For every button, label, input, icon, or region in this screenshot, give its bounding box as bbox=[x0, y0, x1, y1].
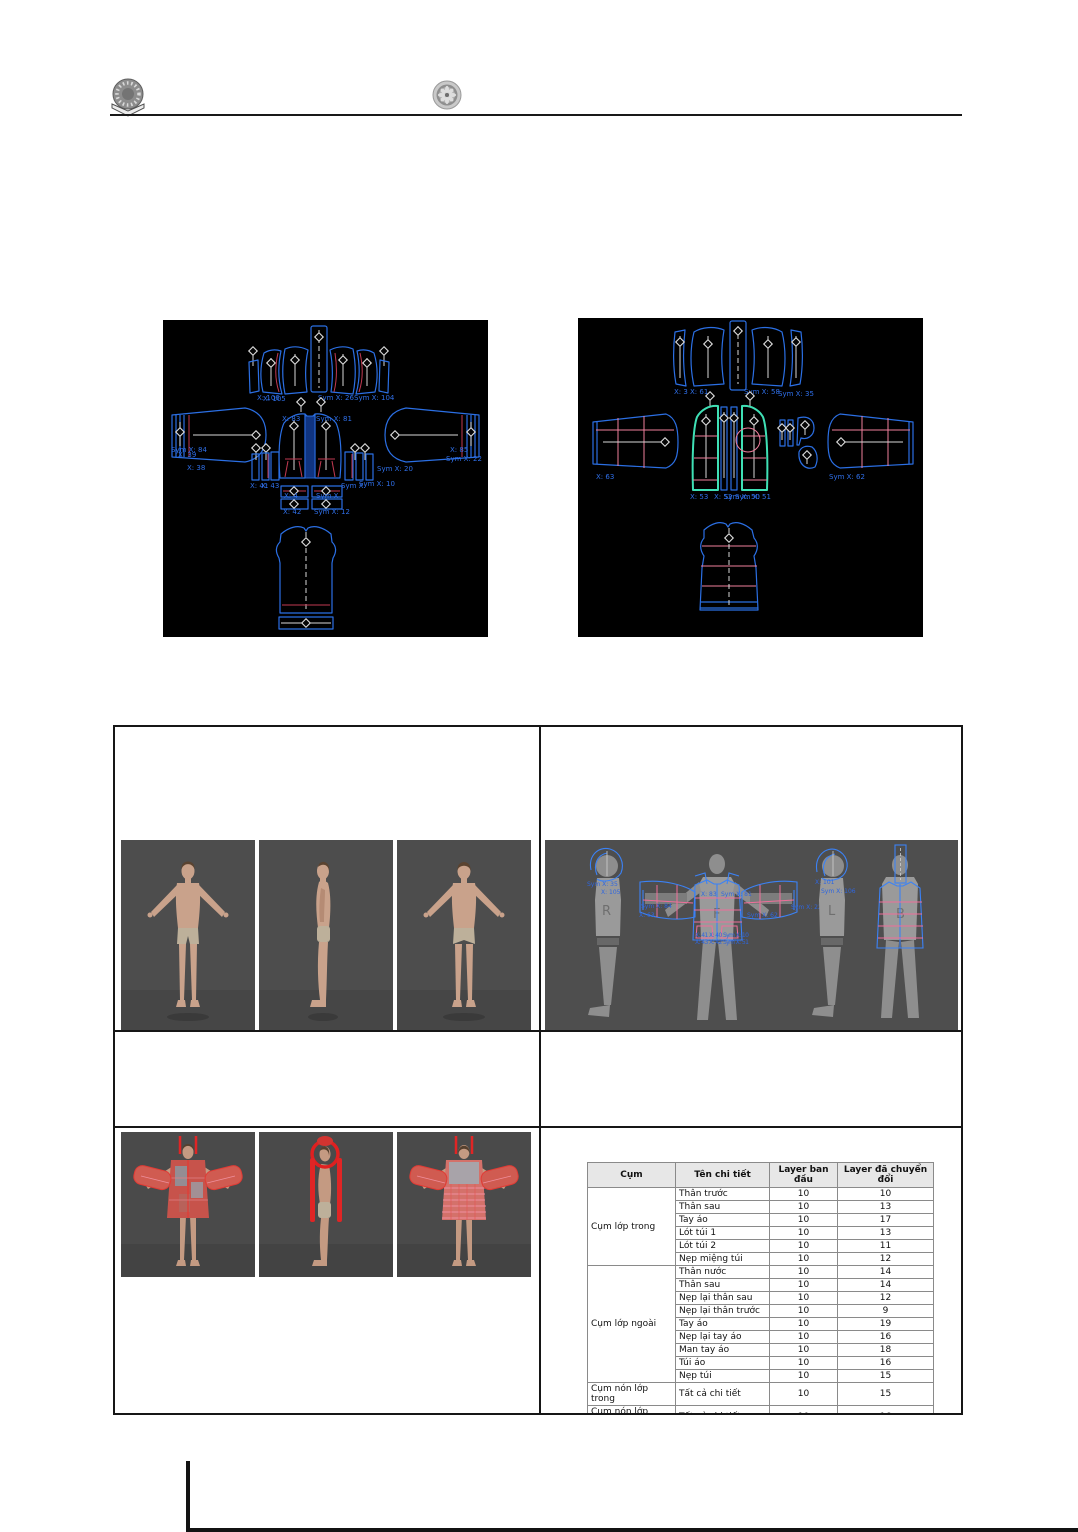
figure-2d-layout-window: R Sym X: 35 X: 105 F bbox=[545, 840, 958, 1030]
layer-table-cell: Nẹp miệng túi bbox=[676, 1253, 770, 1266]
layer-table-cell: 10 bbox=[838, 1188, 934, 1201]
layer-table-cell: Tay áo bbox=[676, 1318, 770, 1331]
layer-table-cell: 10 bbox=[770, 1406, 838, 1414]
pattern-label: X: 83 bbox=[701, 891, 717, 898]
layer-table-cell: Thân sau bbox=[676, 1279, 770, 1292]
cropped-figure-top-border bbox=[186, 1528, 1078, 1532]
cropped-figure-left-border bbox=[186, 1461, 190, 1532]
layer-table-cell: 10 bbox=[770, 1266, 838, 1279]
layer-table-cell: 14 bbox=[838, 1279, 934, 1292]
layer-table-cell: 9 bbox=[838, 1305, 934, 1318]
layer-table-cell: 16 bbox=[838, 1331, 934, 1344]
pattern-label: Sym X: 51 bbox=[735, 493, 771, 501]
pattern-label: Sym X: 81 bbox=[316, 415, 352, 423]
dressed-avatar-strip bbox=[115, 1132, 539, 1277]
layer-table-cell: 10 bbox=[770, 1331, 838, 1344]
red-jacket-back bbox=[442, 1160, 486, 1220]
layer-table-group-cell: Cụm nón lớp trong bbox=[588, 1383, 676, 1406]
pattern-label: X: 105 bbox=[263, 395, 286, 403]
layer-table-cell: 13 bbox=[838, 1201, 934, 1214]
header-divider-line bbox=[110, 114, 962, 116]
pattern-label: X: 38 bbox=[187, 464, 205, 472]
layer-table-cell: Thân nước bbox=[676, 1266, 770, 1279]
layer-table-row: Cụm nón lớp ngoàiTất cả chi tiết1016 bbox=[588, 1406, 934, 1414]
layer-table-cell: Thân trước bbox=[676, 1188, 770, 1201]
cell-2d-layout: R Sym X: 35 X: 105 F bbox=[541, 727, 961, 1032]
layer-table-row: Cụm lớp ngoàiThân nước1014 bbox=[588, 1266, 934, 1279]
layer-table-cell: Tất cả chi tiết bbox=[676, 1383, 770, 1406]
pattern-label: X: 105 bbox=[601, 889, 621, 896]
avatar-side-view bbox=[259, 840, 393, 1030]
figure-pattern-2d-after: X: 3 X: 61 Sym X: 58 Sym X: 35 X: 63 Sym… bbox=[578, 318, 923, 637]
col-header-group: Cụm bbox=[588, 1163, 676, 1188]
red-jacket bbox=[167, 1160, 209, 1218]
layer-table-cell: 10 bbox=[770, 1292, 838, 1305]
pattern-label: X: 63 bbox=[596, 473, 614, 481]
cell-caption-right bbox=[541, 1032, 961, 1128]
layer-table-cell: 14 bbox=[838, 1266, 934, 1279]
layer-table-cell: Tay áo bbox=[676, 1214, 770, 1227]
pattern-label: X: 39 bbox=[178, 451, 196, 459]
layer-table-cell: 10 bbox=[770, 1214, 838, 1227]
layer-table-cell: 10 bbox=[770, 1344, 838, 1357]
layer-table-group-cell: Cụm lớp trong bbox=[588, 1188, 676, 1266]
layer-table-cell: Lót túi 1 bbox=[676, 1227, 770, 1240]
layer-table-cell: 10 bbox=[770, 1318, 838, 1331]
pattern-label: X: 101 bbox=[815, 879, 835, 886]
layer-table-cell: 11 bbox=[838, 1240, 934, 1253]
faculty-gear-logo bbox=[431, 79, 463, 111]
layer-table-group-cell: Cụm lớp ngoài bbox=[588, 1266, 676, 1383]
layer-table-cell: 10 bbox=[770, 1357, 838, 1370]
layer-table-cell: 10 bbox=[770, 1279, 838, 1292]
pattern-label: X: 42 bbox=[283, 508, 301, 516]
layer-table-cell: Man tay áo bbox=[676, 1344, 770, 1357]
pattern-label: Sym X bbox=[316, 492, 339, 500]
layer-table-cell: 10 bbox=[770, 1201, 838, 1214]
layer-table-cell: 10 bbox=[770, 1370, 838, 1383]
pattern-label: Sym X: 10 bbox=[359, 480, 395, 488]
pattern-label: X: 4 bbox=[284, 492, 298, 500]
layer-table-cell: Lót túi 2 bbox=[676, 1240, 770, 1253]
pattern-label: X: 43 X: 42 Sym X: 51 bbox=[695, 939, 749, 946]
layer-table-header-row: Cụm Tên chi tiết Layer ban đầu Layer đã … bbox=[588, 1163, 934, 1188]
layer-table-cell: Thân sau bbox=[676, 1201, 770, 1214]
figure-pattern-2d-before: X: 106 X: 105 Sym X: 26 Sym X: 104 Sym X… bbox=[163, 320, 488, 637]
layer-table-row: Cụm nón lớp trongTất cả chi tiết1015 bbox=[588, 1383, 934, 1406]
pattern-label: Sym X: 35 bbox=[778, 390, 814, 398]
avatar-shorts bbox=[317, 926, 330, 942]
layer-table-cell: 13 bbox=[838, 1227, 934, 1240]
page: X: 106 X: 105 Sym X: 26 Sym X: 104 Sym X… bbox=[0, 0, 1078, 1532]
silhouette-letter: R bbox=[602, 904, 611, 919]
pattern-label: Sym X: 104 bbox=[354, 394, 395, 402]
col-header-layer-after: Layer đã chuyển đổi bbox=[838, 1163, 934, 1188]
pattern-label: X: 53 bbox=[690, 493, 708, 501]
pattern-label: X: 61 bbox=[690, 388, 708, 396]
avatar-back-view bbox=[397, 840, 531, 1030]
pattern-label: X: 85 bbox=[450, 446, 468, 454]
layer-conversion-table: Cụm Tên chi tiết Layer ban đầu Layer đã … bbox=[587, 1162, 934, 1413]
layer-table-cell: 10 bbox=[770, 1227, 838, 1240]
pattern-label: Sym X: 12 bbox=[314, 508, 350, 516]
avatar-front-view bbox=[121, 840, 255, 1030]
cell-avatar-views bbox=[115, 727, 541, 1032]
pattern-label: Sym X: 62 bbox=[747, 912, 778, 919]
layer-table-cell: 18 bbox=[838, 1344, 934, 1357]
cell-caption-left bbox=[115, 1032, 541, 1128]
layer-table-cell: 10 bbox=[770, 1305, 838, 1318]
layer-table-cell: 15 bbox=[838, 1383, 934, 1406]
layer-table-cell: 12 bbox=[838, 1253, 934, 1266]
layer-table-cell: 12 bbox=[838, 1292, 934, 1305]
pattern-label: Sym X: 84 bbox=[641, 903, 672, 910]
layer-table-cell: Nẹp lại tay áo bbox=[676, 1331, 770, 1344]
pattern-label: X: 3 bbox=[674, 388, 688, 396]
dressed-avatar-front-view bbox=[121, 1132, 255, 1277]
pattern-label: Sym X: 62 bbox=[829, 473, 865, 481]
pattern-label: X: 63 bbox=[639, 912, 655, 919]
figure-table: R Sym X: 35 X: 105 F bbox=[113, 725, 963, 1415]
layer-table-cell: 10 bbox=[770, 1253, 838, 1266]
avatar-views-strip bbox=[115, 840, 539, 1030]
layer-table-cell: 17 bbox=[838, 1214, 934, 1227]
pattern-label: Sym X: 22 bbox=[791, 904, 822, 911]
pattern-label: Sym X: 106 bbox=[821, 888, 856, 895]
pattern-label: X: 41 X: 40 Sym X: 10 bbox=[695, 932, 749, 939]
layer-table-cell: 10 bbox=[770, 1240, 838, 1253]
layer-table-row: Cụm lớp trongThân trước1010 bbox=[588, 1188, 934, 1201]
layer-table-group-cell: Cụm nón lớp ngoài bbox=[588, 1406, 676, 1414]
col-header-part: Tên chi tiết bbox=[676, 1163, 770, 1188]
layer-table-cell: Nẹp lại thân trước bbox=[676, 1305, 770, 1318]
cell-layer-table: Cụm Tên chi tiết Layer ban đầu Layer đã … bbox=[541, 1128, 961, 1413]
layer-table-cell: Nẹp túi bbox=[676, 1370, 770, 1383]
col-header-layer-before: Layer ban đầu bbox=[770, 1163, 838, 1188]
pattern-label: Sym X: 81 bbox=[721, 891, 752, 898]
cell-dressed-avatar-views bbox=[115, 1128, 541, 1413]
layer-table-cell: 19 bbox=[838, 1318, 934, 1331]
layer-table-cell: Tất cả chi tiết bbox=[676, 1406, 770, 1414]
layer-table-cell: Túi áo bbox=[676, 1357, 770, 1370]
dressed-avatar-back-view bbox=[397, 1132, 531, 1277]
pattern-label: X: 83 bbox=[282, 415, 300, 423]
layer-table-cell: 16 bbox=[838, 1406, 934, 1414]
pattern-label: Sym X: 20 bbox=[377, 465, 413, 473]
layer-table-body: Cụm lớp trongThân trước1010Thân sau1013T… bbox=[588, 1188, 934, 1414]
silhouette-letter: L bbox=[828, 904, 836, 919]
pattern-label: Sym X: 22 bbox=[446, 455, 482, 463]
layer-table-cell: 16 bbox=[838, 1357, 934, 1370]
pattern-label: X: 43 bbox=[261, 482, 279, 490]
layer-table-cell: 10 bbox=[770, 1188, 838, 1201]
layer-table-cell: 15 bbox=[838, 1370, 934, 1383]
layer-table-cell: 10 bbox=[770, 1383, 838, 1406]
pattern-label: Sym X: 35 bbox=[587, 881, 618, 888]
layer-table-cell: Nẹp lại thân sau bbox=[676, 1292, 770, 1305]
dressed-avatar-side-view bbox=[259, 1132, 393, 1277]
